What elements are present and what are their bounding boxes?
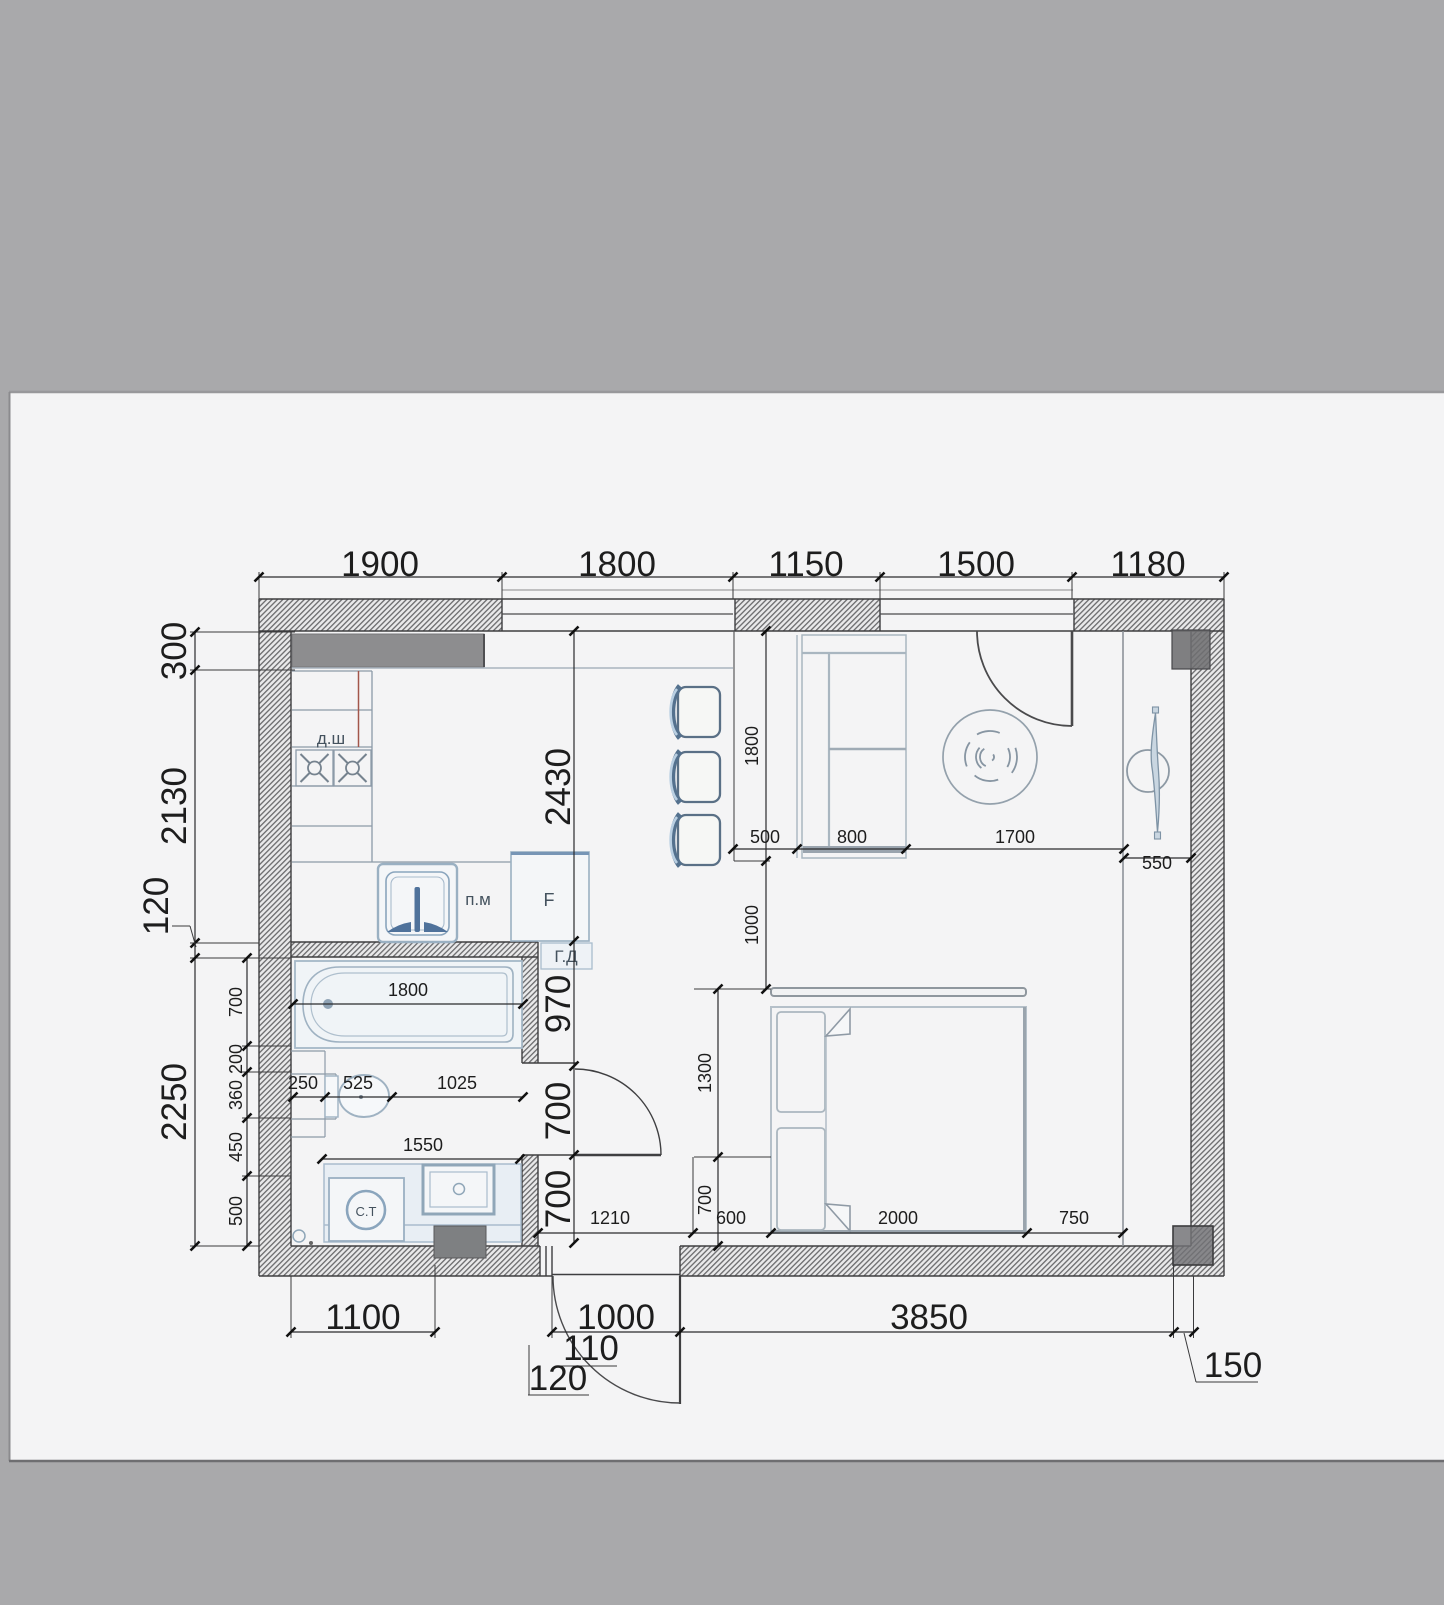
svg-text:750: 750 bbox=[1059, 1208, 1089, 1228]
svg-text:1025: 1025 bbox=[437, 1073, 477, 1093]
svg-text:500: 500 bbox=[750, 827, 780, 847]
svg-text:800: 800 bbox=[837, 827, 867, 847]
svg-text:500: 500 bbox=[226, 1196, 246, 1226]
svg-text:450: 450 bbox=[226, 1132, 246, 1162]
svg-text:3850: 3850 bbox=[890, 1298, 968, 1337]
svg-text:700: 700 bbox=[539, 1170, 578, 1228]
svg-text:1100: 1100 bbox=[325, 1298, 400, 1337]
svg-text:2250: 2250 bbox=[155, 1063, 194, 1141]
svg-text:700: 700 bbox=[539, 1082, 578, 1140]
svg-text:2130: 2130 bbox=[155, 767, 194, 845]
svg-text:1150: 1150 bbox=[768, 545, 843, 584]
svg-text:1210: 1210 bbox=[590, 1208, 630, 1228]
svg-text:1800: 1800 bbox=[742, 726, 762, 766]
svg-text:250: 250 bbox=[288, 1073, 318, 1093]
svg-text:1500: 1500 bbox=[937, 545, 1015, 584]
svg-text:150: 150 bbox=[1204, 1346, 1262, 1385]
svg-text:1000: 1000 bbox=[742, 905, 762, 945]
svg-text:300: 300 bbox=[155, 622, 194, 680]
svg-text:525: 525 bbox=[343, 1073, 373, 1093]
svg-text:2430: 2430 bbox=[539, 748, 578, 826]
svg-text:1800: 1800 bbox=[578, 545, 656, 584]
svg-text:120: 120 bbox=[137, 877, 176, 935]
svg-text:1550: 1550 bbox=[403, 1135, 443, 1155]
svg-text:С.Т: С.Т bbox=[356, 1204, 377, 1219]
svg-text:1300: 1300 bbox=[695, 1053, 715, 1093]
svg-text:1700: 1700 bbox=[995, 827, 1035, 847]
svg-text:700: 700 bbox=[695, 1185, 715, 1215]
svg-text:1800: 1800 bbox=[388, 980, 428, 1000]
svg-text:200: 200 bbox=[226, 1044, 246, 1074]
svg-text:970: 970 bbox=[539, 975, 578, 1033]
svg-text:п.м: п.м bbox=[465, 890, 491, 909]
svg-text:д.ш: д.ш bbox=[317, 729, 345, 748]
svg-text:F: F bbox=[544, 890, 555, 910]
svg-text:1900: 1900 bbox=[341, 545, 419, 584]
svg-text:600: 600 bbox=[716, 1208, 746, 1228]
svg-text:2000: 2000 bbox=[878, 1208, 918, 1228]
svg-text:120: 120 bbox=[529, 1359, 587, 1398]
svg-text:700: 700 bbox=[226, 987, 246, 1017]
svg-text:360: 360 bbox=[226, 1080, 246, 1110]
svg-text:550: 550 bbox=[1142, 853, 1172, 873]
svg-text:1180: 1180 bbox=[1110, 545, 1185, 584]
